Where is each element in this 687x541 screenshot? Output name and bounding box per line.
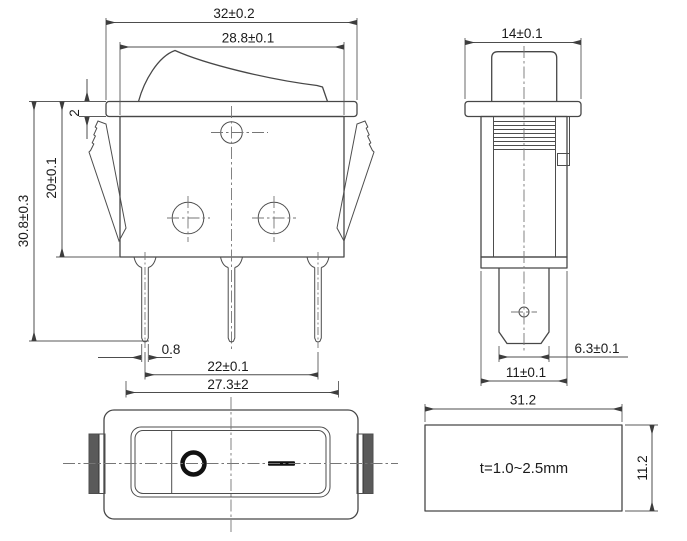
panel-cutout-view: t=1.0~2.5mm 31.2 11.2 [425,393,658,512]
side-view: 14±0.1 6.3±0.1 11±0.1 [465,26,628,386]
mounting-wing-right-icon [337,121,374,241]
side-latch-step [558,154,570,166]
front-rocker-actuator [139,51,328,102]
dim-cutout-width: 31.2 [510,393,536,408]
front-body [120,117,344,258]
side-ribs [494,122,556,150]
dim-front-pin-span: 27.3±2 [207,377,248,392]
dim-front-overall-width: 32±0.2 [213,6,254,21]
top-view [63,397,398,532]
dim-front-pin-pitch: 22±0.1 [207,359,248,374]
dim-side-body-width: 11±0.1 [506,365,546,380]
side-flange [465,102,581,117]
dim-cutout-height: 11.2 [635,455,650,480]
drawing-sheet: 32±0.2 28.8±0.1 30.8±0.3 20±0.1 2 0.8 22… [0,0,687,541]
dim-front-body-width: 28.8±0.1 [222,31,274,46]
front-view: 32±0.2 28.8±0.1 30.8±0.3 20±0.1 2 0.8 22… [16,6,374,398]
dim-front-pin-thickness: 0.8 [162,342,181,357]
top-rocker-face [135,431,326,494]
top-rocker-window [131,427,330,497]
dim-front-flange-thickness: 2 [67,109,82,117]
rocker-switch-drawing: 32±0.2 28.8±0.1 30.8±0.3 20±0.1 2 0.8 22… [0,0,687,541]
panel-thickness-note: t=1.0~2.5mm [480,460,568,477]
dim-side-width: 14±0.1 [501,26,542,41]
dim-front-body-depth: 20±0.1 [44,157,59,198]
dim-front-overall-height: 30.8±0.3 [16,195,31,247]
dim-side-terminal-width: 6.3±0.1 [575,341,620,356]
